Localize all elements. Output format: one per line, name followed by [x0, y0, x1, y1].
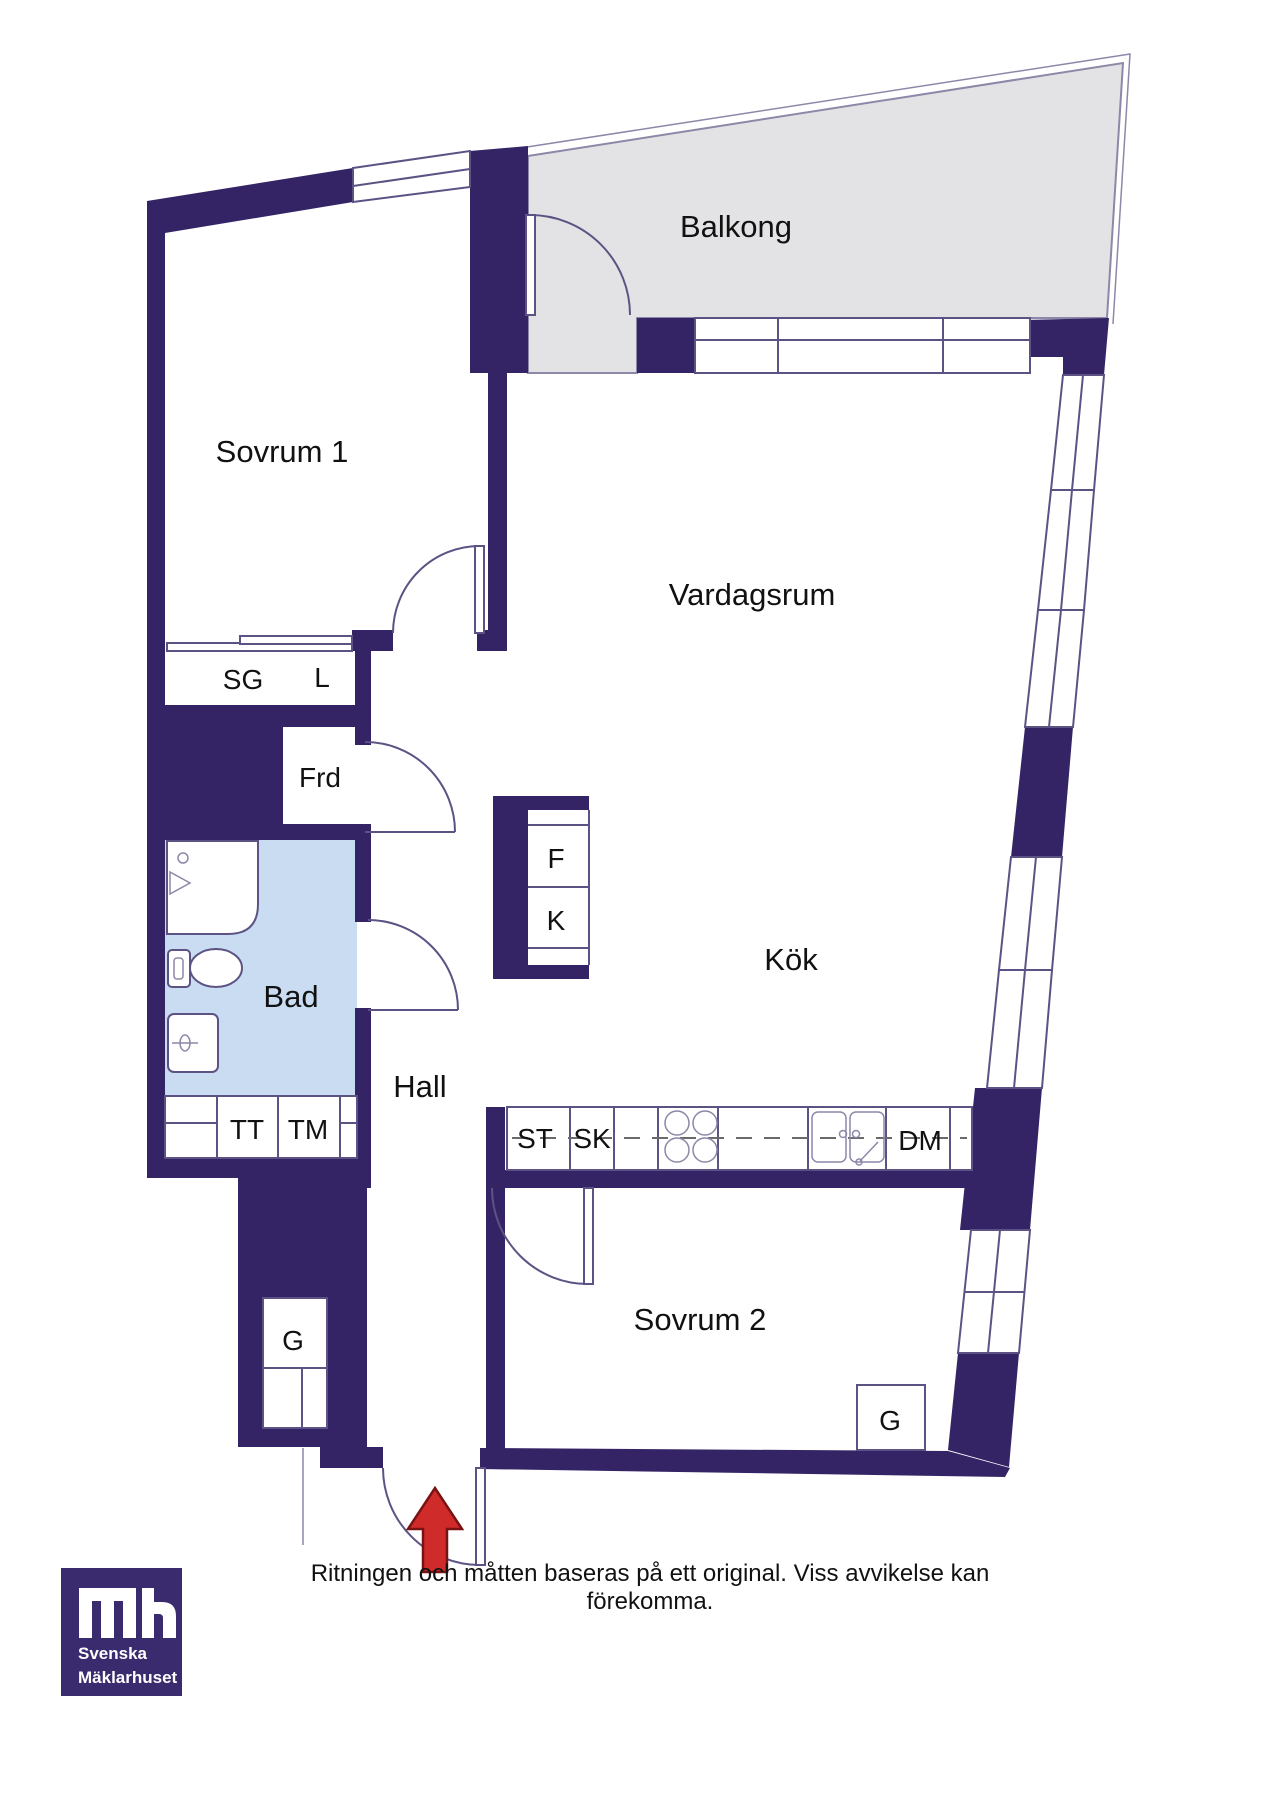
door-leaf-sovrum2: [584, 1188, 593, 1284]
washbasin-icon: [168, 1014, 218, 1072]
wall-g-closet-right: [327, 1298, 367, 1447]
label-sg: SG: [223, 664, 263, 695]
label-sovrum2: Sovrum 2: [634, 1302, 767, 1337]
window-vardagsrum-3: [943, 318, 1030, 373]
label-f: F: [547, 843, 564, 874]
g-closet-hall: [263, 1298, 327, 1428]
label-hall: Hall: [393, 1069, 446, 1104]
label-vardagsrum: Vardagsrum: [669, 577, 836, 612]
wall-kitchen-counter-band: [505, 1170, 972, 1188]
wall-bad-bottom-band: [147, 1158, 367, 1178]
toilet-icon: [168, 949, 242, 987]
wall-bad-right-upper: [355, 838, 371, 922]
wall-block-left-of-frd: [147, 705, 283, 840]
floorplan-drawing: Sovrum 1 Balkong Vardagsrum Kök Hall Bad…: [0, 0, 1280, 1811]
logo-name: Svenska Mäklarhuset: [78, 1642, 177, 1690]
window-vardagsrum-2: [778, 318, 943, 373]
label-g-sovrum2: G: [879, 1405, 901, 1436]
label-sovrum1: Sovrum 1: [216, 434, 349, 469]
wall-sg-bottom: [283, 705, 371, 727]
wall-bad-top: [147, 824, 371, 840]
wall-entry-step: [320, 1447, 383, 1468]
disclaimer-text: Ritningen och måtten baseras på ett orig…: [250, 1560, 1050, 1616]
door-leaf-entrance: [476, 1468, 485, 1565]
logo-monogram-icon: [61, 1568, 182, 1638]
wall-right-pier-3: [948, 1353, 1019, 1467]
label-bad: Bad: [263, 979, 318, 1014]
sg-sliding-door: [240, 636, 352, 644]
wall-vardagsrum-top-block: [637, 318, 695, 373]
door-leaf-balcony: [526, 215, 535, 315]
wall-sovrum1-vardagsrum: [488, 373, 507, 651]
door-arc-bad: [368, 920, 458, 1010]
label-balkong: Balkong: [680, 209, 792, 244]
door-arc-sovrum2: [492, 1188, 588, 1284]
label-g-hall: G: [282, 1325, 304, 1356]
wall-sovrum2-left: [486, 1107, 505, 1452]
label-frd: Frd: [299, 762, 341, 793]
wall-balcony-door-block: [470, 146, 528, 373]
wall-right-pier-1: [1011, 727, 1073, 857]
wall-left-outer: [147, 201, 165, 1178]
label-dm: DM: [898, 1125, 942, 1156]
window-vardagsrum-1: [695, 318, 778, 373]
logo-name-line2: Mäklarhuset: [78, 1666, 177, 1690]
label-st: ST: [517, 1123, 553, 1154]
wall-sovrum2-bottom: [480, 1448, 1010, 1477]
label-sk: SK: [573, 1123, 611, 1154]
label-k: K: [547, 905, 566, 936]
floorplan-page: Sovrum 1 Balkong Vardagsrum Kök Hall Bad…: [0, 0, 1280, 1811]
brand-logo: Svenska Mäklarhuset: [61, 1568, 182, 1696]
wall-bottom-left-band: [238, 1428, 367, 1447]
wall-sovrum1-top: [147, 168, 353, 233]
wall-frd-right: [355, 633, 371, 745]
label-kok: Kök: [764, 942, 818, 977]
wall-block-bottom-left: [238, 1178, 367, 1298]
logo-name-line1: Svenska: [78, 1642, 177, 1666]
label-tm: TM: [288, 1114, 328, 1145]
wall-top-right-corner-block: [1023, 318, 1109, 375]
label-tt: TT: [230, 1114, 264, 1145]
wall-g-closet-left: [238, 1298, 263, 1447]
label-l: L: [314, 662, 330, 693]
door-leaf-sovrum1: [475, 546, 484, 633]
door-arc-frd: [365, 742, 455, 832]
door-arc-sovrum1: [393, 546, 480, 633]
